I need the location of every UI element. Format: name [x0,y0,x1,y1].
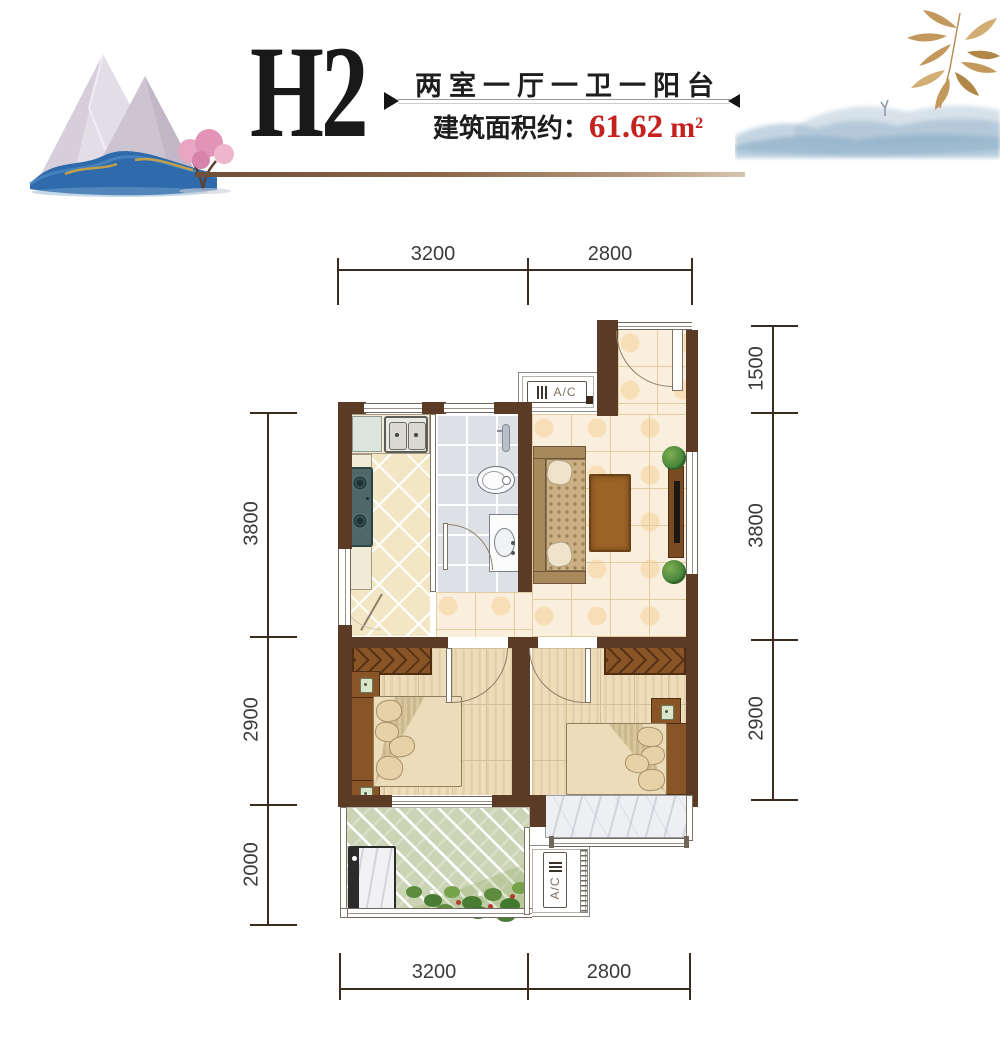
dim-line-left [267,413,269,925]
bay-window-cap [684,836,689,848]
kitchen-window [364,403,424,413]
entry-door-leaf [672,329,683,391]
ac-label: A/C [553,385,576,399]
unit-code: H2 [250,26,366,158]
plant-flower [510,894,515,899]
ac-top-block [586,396,593,404]
floorplan-page: H2 两室一厅一卫一阳台 建筑面积约：61.62m2 [0,0,1000,1059]
dim-tick [250,924,297,926]
title-divider [392,99,738,107]
balcony-plants [396,856,530,914]
dim-right-2: 3800 [746,491,769,561]
stove-burner [352,475,368,491]
ac-unit-bottom: A/C [543,852,567,908]
wall-segment [422,402,446,414]
window [338,549,351,625]
wall-segment [508,637,538,648]
dim-tick [250,412,297,414]
potted-plant [662,446,686,470]
divider-line-top [398,99,730,100]
plant-foliage [444,886,460,898]
partition-wall [430,414,436,592]
nightstand [350,671,380,698]
bed-headboard [351,697,374,781]
unit-subtitle: 两室一厅一卫一阳台 [398,64,738,103]
ac-grille [580,849,588,913]
living-room-window [686,452,698,574]
lamp-icon [360,678,373,693]
area-exponent: 2 [695,115,703,132]
divider-line-bottom [398,103,730,104]
wall-segment [686,330,698,452]
bed-headboard [665,723,687,795]
bay-window [552,838,686,847]
area-value: 61.62 [589,109,663,145]
bamboo-and-ink-mountains-art [735,8,1000,178]
balcony-wall-right [524,827,530,915]
wall-segment [338,402,352,549]
wall-segment [338,795,392,807]
dim-tick [751,412,798,414]
ac-label: A/C [548,877,562,900]
dim-tick [751,639,798,641]
dim-tick [250,636,297,638]
dim-bottom-2: 2800 [528,961,690,984]
wall-segment [518,402,532,592]
washing-machine [348,846,396,912]
dim-tick [751,325,798,327]
bathroom-vanity [489,514,519,572]
dim-top-2: 2800 [528,243,692,266]
sofa-armrest [533,571,586,584]
toilet [477,466,515,494]
bathroom-window [444,403,496,413]
entry-pillar [597,320,618,416]
bed-pillow [375,755,404,782]
plant-flower [456,900,461,905]
dim-left-1: 3800 [241,489,264,559]
washer-knob [352,856,357,861]
dim-line-top [338,269,692,271]
area-label: 建筑面积约： [433,114,589,144]
dim-left-2: 2900 [241,685,264,755]
shower-head [502,424,510,452]
bay-pillar [530,795,546,827]
kitchen-sink [384,416,428,453]
kitchen-appliance [352,416,382,452]
balcony-window [346,908,532,918]
wall-segment [686,574,698,807]
area-line: 建筑面积约：61.62m2 [398,108,738,146]
bed [566,723,667,795]
dim-line-bottom [340,988,690,990]
stove-burner [352,513,368,529]
bed [373,696,462,787]
balcony-wall-corner [340,908,348,918]
lamp-icon [661,705,674,720]
dim-right-1: 1500 [746,334,769,404]
wall-segment [338,637,448,648]
barcode-icon [537,386,549,399]
nightstand [651,698,681,725]
sofa-armrest [533,446,586,459]
bay-window-cap [549,836,554,848]
bedroom-divider-wall [512,648,530,807]
wall-segment [338,625,352,807]
plant-flower [478,892,482,896]
wall-segment [597,637,698,648]
coffee-table [589,474,631,552]
dim-top-1: 3200 [338,243,528,266]
barcode-icon [549,861,562,873]
header-divider-bar [195,172,745,177]
bay-window-sill [545,795,687,838]
hallway-floor [436,592,532,637]
dim-left-3: 2000 [241,830,264,900]
plant-flower [430,890,434,894]
bedroom-left-window [392,796,492,805]
dim-tick [250,804,297,806]
bay-side-wall [686,795,693,841]
dim-right-3: 2900 [746,684,769,754]
plant-foliage [406,886,422,898]
dim-bottom-1: 3200 [340,961,528,984]
ac-unit-top: A/C [527,381,587,403]
dim-line-right [772,326,774,800]
area-unit: m [670,111,695,144]
bedroom-right-door-leaf [585,648,591,703]
shower-arm [497,430,502,432]
sofa-back [533,446,546,584]
balcony-wall-left [340,807,347,912]
plant-foliage [484,888,502,901]
dim-tick [751,799,798,801]
wardrobe [604,645,686,675]
arrow-right-icon [384,92,399,110]
potted-plant [662,560,686,584]
tv [674,481,680,543]
